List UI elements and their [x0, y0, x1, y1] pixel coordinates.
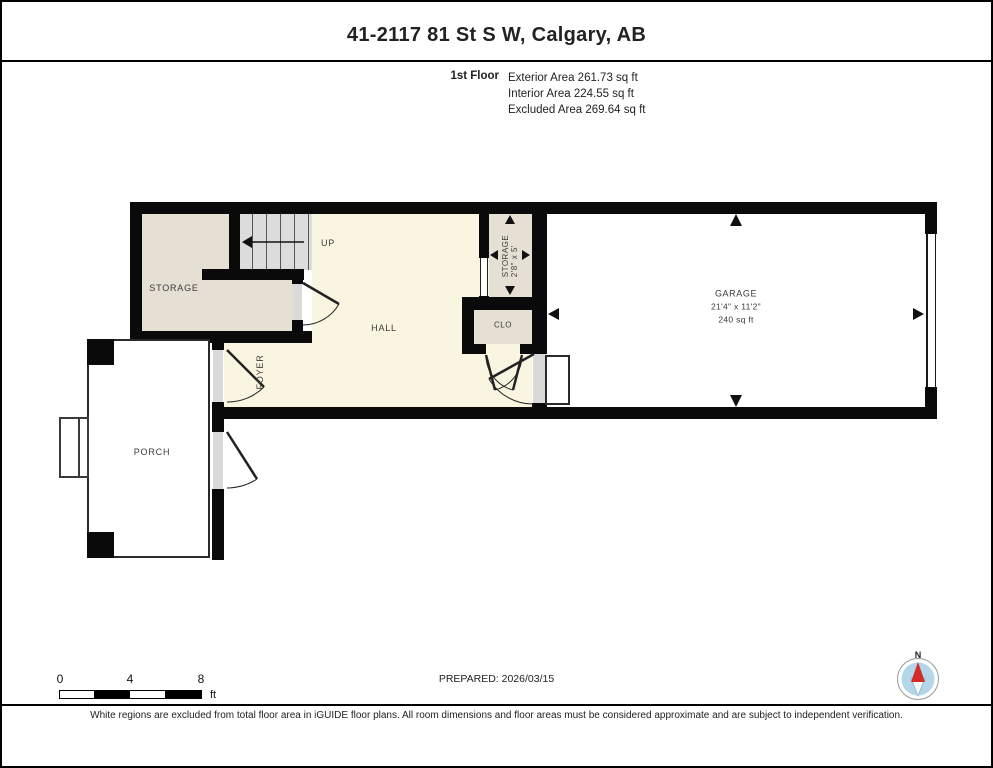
floor-plan-page: 41-2117 81 St S W, Calgary, AB 1st Floor… — [0, 0, 993, 768]
stairs-up-label: UP — [321, 238, 335, 248]
door-swings — [227, 283, 534, 488]
scale-segment — [165, 691, 201, 698]
scale-unit: ft — [210, 689, 216, 701]
scale-segment — [94, 691, 130, 698]
hall-label: HALL — [371, 323, 397, 333]
foyer-label: FOYER — [255, 354, 265, 389]
scale-bar — [59, 690, 202, 699]
storage-closet-label: STORAGE 2'8" x 5' — [501, 235, 519, 277]
plan-annotations — [2, 2, 993, 768]
disclaimer-text: White regions are excluded from total fl… — [2, 710, 991, 721]
compass-north-label: N — [915, 650, 922, 660]
footer-divider — [2, 704, 991, 706]
porch-label: PORCH — [134, 447, 171, 457]
stairs-up-arrow — [242, 236, 304, 248]
garage-label: GARAGE 21'4" x 11'2" 240 sq ft — [711, 288, 761, 327]
prepared-date: PREPARED: 2026/03/15 — [2, 673, 991, 685]
storage-room-label: STORAGE — [149, 283, 198, 293]
clo-label: CLO — [494, 321, 512, 330]
